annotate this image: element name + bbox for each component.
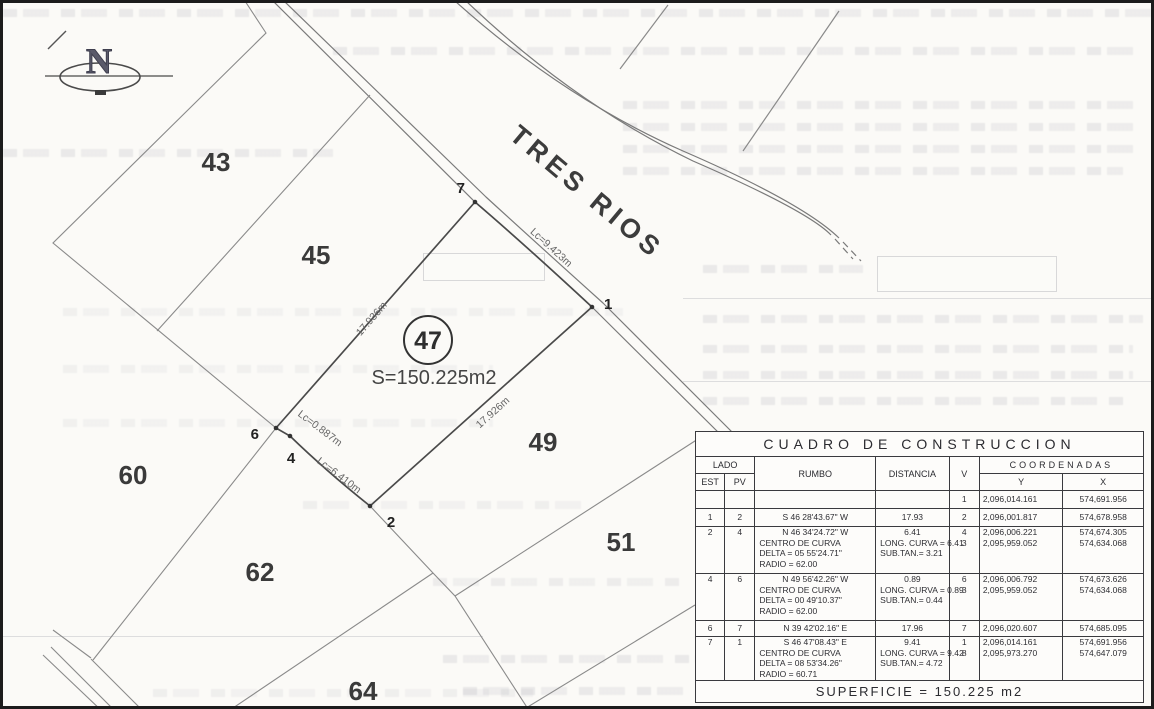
col-header-est: EST	[696, 474, 725, 491]
lot-label: 43	[202, 147, 231, 177]
dimension-label: 17.926m	[474, 394, 513, 430]
cell-pv: 1	[725, 637, 755, 681]
lot-47-number: 47	[414, 327, 442, 355]
dimension-label: Lc=0.887m	[295, 408, 344, 449]
cell-v: 43	[949, 527, 979, 574]
table-row: 12,096,014.161574,691.956	[696, 491, 1144, 509]
cell-est: 7	[696, 637, 725, 681]
cell-coord-y: 2,096,020.607	[979, 621, 1063, 637]
survey-plan-page: 7 1 2 4 6 43 45 49 51 60 62 64 47 S=150.…	[0, 0, 1154, 709]
cell-pv	[725, 491, 755, 509]
table-row: 24N 46 34'24.72" WCENTRO DE CURVADELTA =…	[696, 527, 1144, 574]
cell-est: 4	[696, 574, 725, 621]
col-header-x: X	[1063, 474, 1144, 491]
lot-label: 64	[349, 676, 378, 706]
cell-est: 1	[696, 509, 725, 527]
vertex-label: 6	[251, 426, 259, 443]
vertex-label: 4	[287, 450, 296, 467]
dimension-label: Lc=6.410m	[314, 455, 363, 496]
cell-v: 1	[949, 491, 979, 509]
parcel-47-labels: 47 S=150.225m2	[371, 316, 496, 389]
cell-distancia	[876, 491, 949, 509]
dimension-label: 17.936m	[354, 299, 390, 338]
lot-47-area: S=150.225m2	[371, 367, 496, 389]
cell-distancia: 0.89LONG. CURVA = 0.89SUB.TAN.= 0.44	[876, 574, 949, 621]
col-header-v: V	[949, 457, 979, 491]
col-header-coordenadas: COORDENADAS	[979, 457, 1143, 474]
cell-est	[696, 491, 725, 509]
cell-rumbo: N 46 34'24.72" WCENTRO DE CURVADELTA = 0…	[755, 527, 876, 574]
lot-label: 62	[246, 557, 275, 587]
north-letter: N	[86, 41, 112, 81]
cell-v: 7	[949, 621, 979, 637]
cell-pv: 4	[725, 527, 755, 574]
col-header-distancia: DISTANCIA	[876, 457, 949, 491]
table-row: 67N 39 42'02.16" E17.9672,096,020.607574…	[696, 621, 1144, 637]
cell-coord-y: 2,096,006.7922,095,959.052	[979, 574, 1063, 621]
table-row: 46N 49 56'42.26" WCENTRO DE CURVADELTA =…	[696, 574, 1144, 621]
table-title: CUADRO DE CONSTRUCCION	[696, 432, 1144, 457]
lot-label: 60	[119, 460, 148, 490]
lot-label: 51	[607, 527, 636, 557]
construction-table: CUADRO DE CONSTRUCCION LADO RUMBO DISTAN…	[695, 431, 1144, 703]
cell-est: 6	[696, 621, 725, 637]
cell-distancia: 6.41LONG. CURVA = 6.41SUB.TAN.= 3.21	[876, 527, 949, 574]
cell-coord-x: 574,673.626574,634.068	[1063, 574, 1144, 621]
cell-v: 63	[949, 574, 979, 621]
north-arrow-icon: N	[45, 31, 173, 95]
table-row: 71S 46 47'08.43" ECENTRO DE CURVADELTA =…	[696, 637, 1144, 681]
dimension-label: Lc=9.423m	[528, 226, 575, 270]
cell-pv: 2	[725, 509, 755, 527]
table-row: 12S 46 28'43.67" W17.9322,096,001.817574…	[696, 509, 1144, 527]
cell-coord-x: 574,685.095	[1063, 621, 1144, 637]
cell-coord-x: 574,691.956574,647.079	[1063, 637, 1144, 681]
cell-coord-y: 2,096,006.2212,095,959.052	[979, 527, 1063, 574]
vertex-label: 2	[387, 514, 395, 531]
cell-distancia: 17.96	[876, 621, 949, 637]
street-lines	[273, 3, 861, 441]
cell-rumbo: N 49 56'42.26" WCENTRO DE CURVADELTA = 0…	[755, 574, 876, 621]
cell-rumbo	[755, 491, 876, 509]
cell-coord-y: 2,096,001.817	[979, 509, 1063, 527]
cell-v: 2	[949, 509, 979, 527]
cell-pv: 6	[725, 574, 755, 621]
table-footer: SUPERFICIE = 150.225 m2	[696, 681, 1144, 703]
cell-v: 18	[949, 637, 979, 681]
cell-rumbo: S 46 28'43.67" W	[755, 509, 876, 527]
cell-coord-y: 2,096,014.1612,095,973.270	[979, 637, 1063, 681]
col-header-pv: PV	[725, 474, 755, 491]
cell-coord-y: 2,096,014.161	[979, 491, 1063, 509]
cell-coord-x: 574,691.956	[1063, 491, 1144, 509]
street-name-label: TRES RIOS	[504, 119, 669, 264]
col-header-rumbo: RUMBO	[755, 457, 876, 491]
vertex-label: 7	[457, 180, 465, 197]
cell-rumbo: N 39 42'02.16" E	[755, 621, 876, 637]
cell-distancia: 17.93	[876, 509, 949, 527]
cell-distancia: 9.41LONG. CURVA = 9.42SUB.TAN.= 4.72	[876, 637, 949, 681]
vertex-label: 1	[604, 296, 612, 313]
cell-coord-x: 574,674.305574,634.068	[1063, 527, 1144, 574]
cell-pv: 7	[725, 621, 755, 637]
lot-boundary-lines	[43, 3, 698, 709]
col-header-lado: LADO	[696, 457, 755, 474]
lot-label: 45	[302, 240, 331, 270]
cell-est: 2	[696, 527, 725, 574]
cell-rumbo: S 46 47'08.43" ECENTRO DE CURVADELTA = 0…	[755, 637, 876, 681]
lot-label: 49	[529, 427, 558, 457]
col-header-y: Y	[979, 474, 1063, 491]
cell-coord-x: 574,678.958	[1063, 509, 1144, 527]
